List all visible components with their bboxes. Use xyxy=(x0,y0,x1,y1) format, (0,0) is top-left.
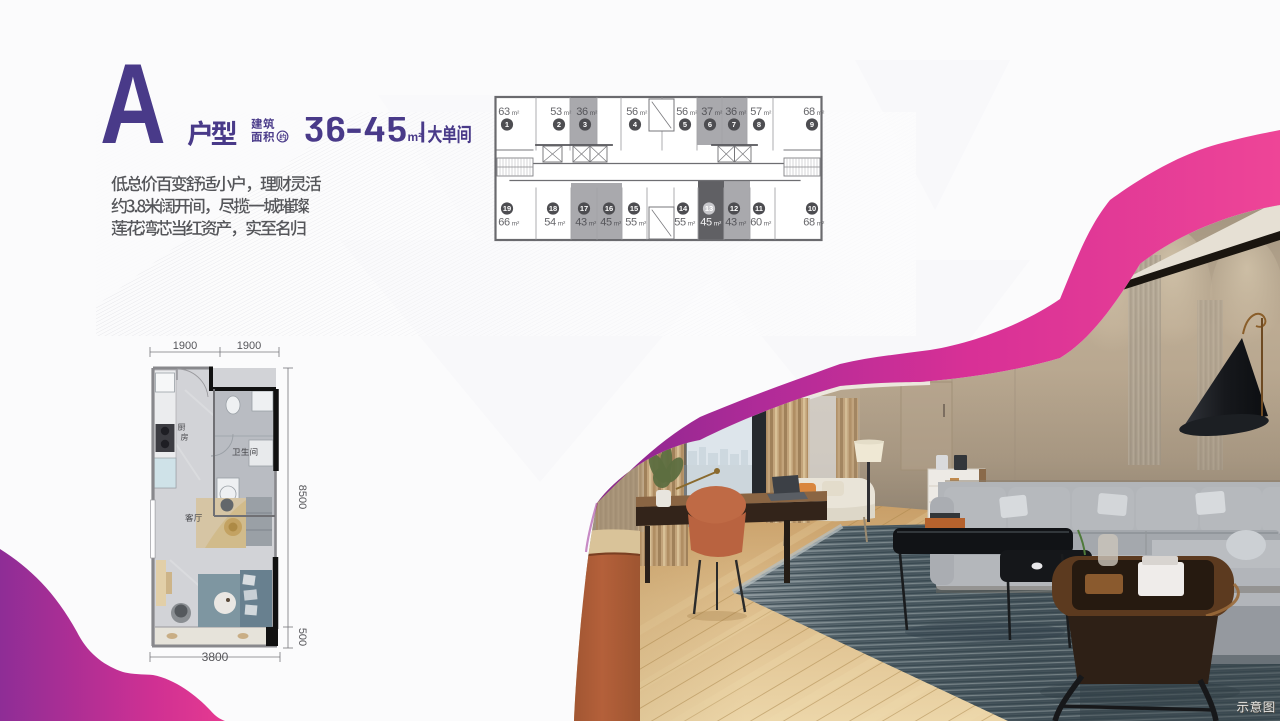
svg-text:m²: m² xyxy=(764,221,772,228)
svg-text:8500: 8500 xyxy=(296,485,308,509)
svg-text:45: 45 xyxy=(600,217,612,229)
svg-text:m²: m² xyxy=(690,110,698,117)
svg-text:2: 2 xyxy=(557,120,561,129)
svg-text:m²: m² xyxy=(589,221,597,228)
svg-text:19: 19 xyxy=(503,204,511,213)
svg-text:43: 43 xyxy=(575,217,587,229)
svg-text:m²: m² xyxy=(739,221,747,228)
svg-text:1900: 1900 xyxy=(237,340,261,352)
svg-text:3800: 3800 xyxy=(202,650,229,664)
svg-text:9: 9 xyxy=(810,120,814,129)
svg-text:500: 500 xyxy=(296,628,308,646)
svg-text:5: 5 xyxy=(683,120,687,129)
svg-text:m²: m² xyxy=(512,110,520,117)
svg-text:m²: m² xyxy=(614,221,622,228)
svg-text:11: 11 xyxy=(755,204,763,213)
svg-text:m²: m² xyxy=(764,110,772,117)
svg-text:3: 3 xyxy=(583,120,587,129)
svg-text:66: 66 xyxy=(498,217,510,229)
svg-text:m²: m² xyxy=(408,130,423,144)
svg-text:10: 10 xyxy=(808,204,816,213)
svg-text:63: 63 xyxy=(498,106,510,118)
svg-text:m²: m² xyxy=(715,110,723,117)
svg-text:m²: m² xyxy=(564,110,572,117)
svg-text:55: 55 xyxy=(674,217,686,229)
svg-text:55: 55 xyxy=(625,217,637,229)
svg-text:17: 17 xyxy=(580,204,588,213)
svg-text:m²: m² xyxy=(739,110,747,117)
svg-text:36: 36 xyxy=(576,106,588,118)
svg-text:45: 45 xyxy=(700,217,712,229)
svg-text:60: 60 xyxy=(750,217,762,229)
svg-text:m²: m² xyxy=(512,221,520,228)
svg-text:A: A xyxy=(100,40,166,167)
svg-text:m²: m² xyxy=(640,110,648,117)
svg-text:37: 37 xyxy=(701,106,713,118)
svg-text:16: 16 xyxy=(605,204,613,213)
svg-text:m²: m² xyxy=(817,110,825,117)
svg-text:1: 1 xyxy=(505,120,509,129)
svg-text:53: 53 xyxy=(550,106,562,118)
svg-text:m²: m² xyxy=(688,221,696,228)
svg-text:7: 7 xyxy=(732,120,736,129)
svg-text:14: 14 xyxy=(679,204,688,213)
svg-text:13: 13 xyxy=(705,204,713,213)
svg-text:68: 68 xyxy=(803,217,815,229)
svg-text:m²: m² xyxy=(817,221,825,228)
svg-text:18: 18 xyxy=(549,204,557,213)
svg-text:m²: m² xyxy=(639,221,647,228)
svg-text:m²: m² xyxy=(590,110,598,117)
svg-text:56: 56 xyxy=(626,106,638,118)
svg-text:m²: m² xyxy=(558,221,566,228)
svg-text:54: 54 xyxy=(544,217,556,229)
svg-text:15: 15 xyxy=(630,204,638,213)
svg-text:8: 8 xyxy=(757,120,761,129)
svg-text:1900: 1900 xyxy=(173,340,197,352)
svg-text:68: 68 xyxy=(803,106,815,118)
svg-text:56: 56 xyxy=(676,106,688,118)
svg-text:6: 6 xyxy=(708,120,712,129)
svg-text:12: 12 xyxy=(730,204,738,213)
svg-text:m²: m² xyxy=(714,221,722,228)
svg-text:36: 36 xyxy=(725,106,737,118)
svg-text:57: 57 xyxy=(750,106,762,118)
svg-text:43: 43 xyxy=(725,217,737,229)
